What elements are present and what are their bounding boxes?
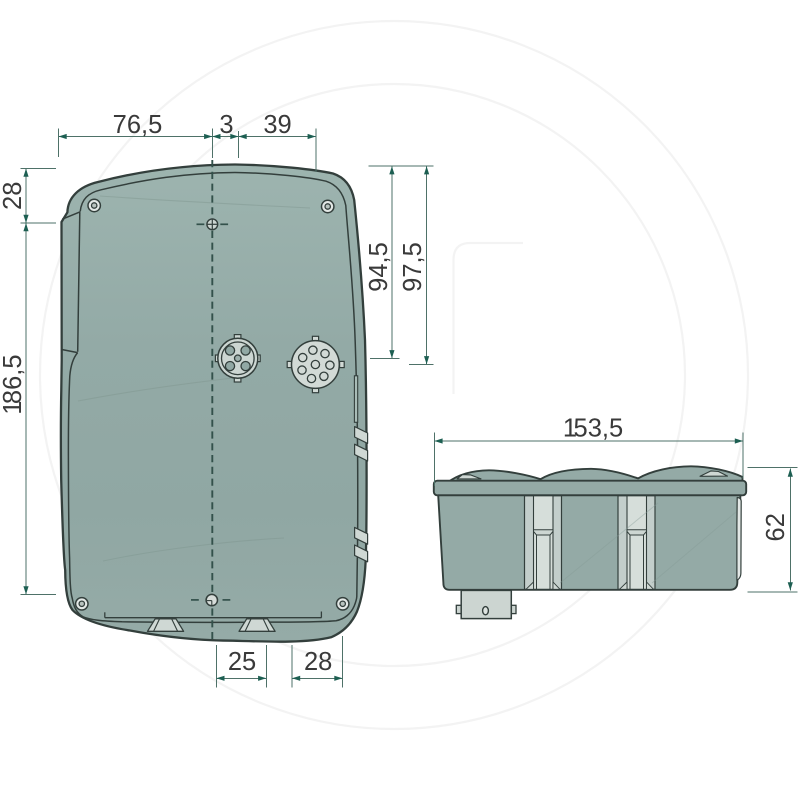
svg-text:153,5: 153,5 — [563, 415, 623, 443]
svg-text:62: 62 — [762, 513, 790, 541]
svg-text:28: 28 — [304, 648, 332, 676]
svg-text:25: 25 — [228, 648, 256, 676]
svg-text:186,5: 186,5 — [0, 354, 27, 414]
svg-text:39: 39 — [263, 111, 291, 139]
svg-text:28: 28 — [0, 182, 27, 210]
svg-text:76,5: 76,5 — [113, 111, 163, 139]
svg-text:94,5: 94,5 — [365, 242, 393, 292]
svg-text:3: 3 — [219, 111, 233, 139]
svg-text:97,5: 97,5 — [399, 242, 427, 292]
